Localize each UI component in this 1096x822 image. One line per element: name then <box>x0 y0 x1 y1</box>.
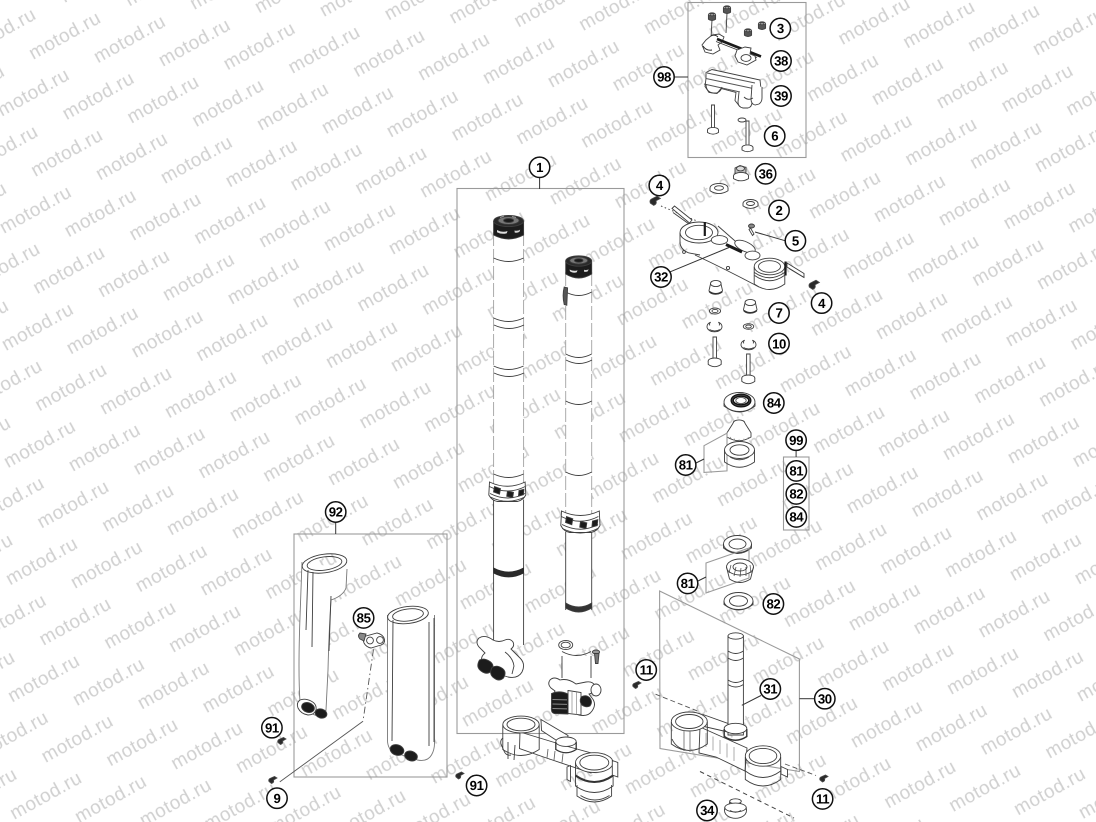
svg-text:82: 82 <box>789 487 803 502</box>
svg-text:11: 11 <box>640 663 653 678</box>
svg-text:81: 81 <box>681 576 695 591</box>
svg-text:31: 31 <box>763 682 777 697</box>
svg-text:84: 84 <box>789 510 804 525</box>
svg-text:5: 5 <box>792 234 799 249</box>
svg-text:81: 81 <box>679 458 693 473</box>
svg-text:36: 36 <box>759 167 773 182</box>
svg-text:38: 38 <box>774 54 788 69</box>
svg-text:7: 7 <box>776 306 783 321</box>
svg-text:81: 81 <box>789 464 803 479</box>
svg-text:99: 99 <box>789 433 803 448</box>
svg-text:34: 34 <box>700 803 715 818</box>
svg-text:91: 91 <box>265 720 279 735</box>
svg-text:9: 9 <box>274 791 281 806</box>
svg-text:84: 84 <box>767 396 782 411</box>
svg-text:1: 1 <box>536 160 543 175</box>
svg-text:4: 4 <box>818 296 826 311</box>
svg-text:32: 32 <box>654 270 668 285</box>
svg-text:85: 85 <box>357 611 371 626</box>
svg-text:10: 10 <box>772 336 786 351</box>
svg-text:4: 4 <box>656 178 664 193</box>
svg-text:3: 3 <box>777 21 784 36</box>
svg-text:91: 91 <box>470 778 484 793</box>
svg-text:92: 92 <box>329 505 343 520</box>
svg-text:82: 82 <box>766 597 780 612</box>
svg-text:30: 30 <box>818 691 832 706</box>
svg-text:39: 39 <box>774 89 788 104</box>
svg-text:6: 6 <box>771 129 778 144</box>
svg-text:11: 11 <box>816 792 829 807</box>
svg-text:2: 2 <box>776 203 783 218</box>
svg-text:98: 98 <box>657 70 671 85</box>
